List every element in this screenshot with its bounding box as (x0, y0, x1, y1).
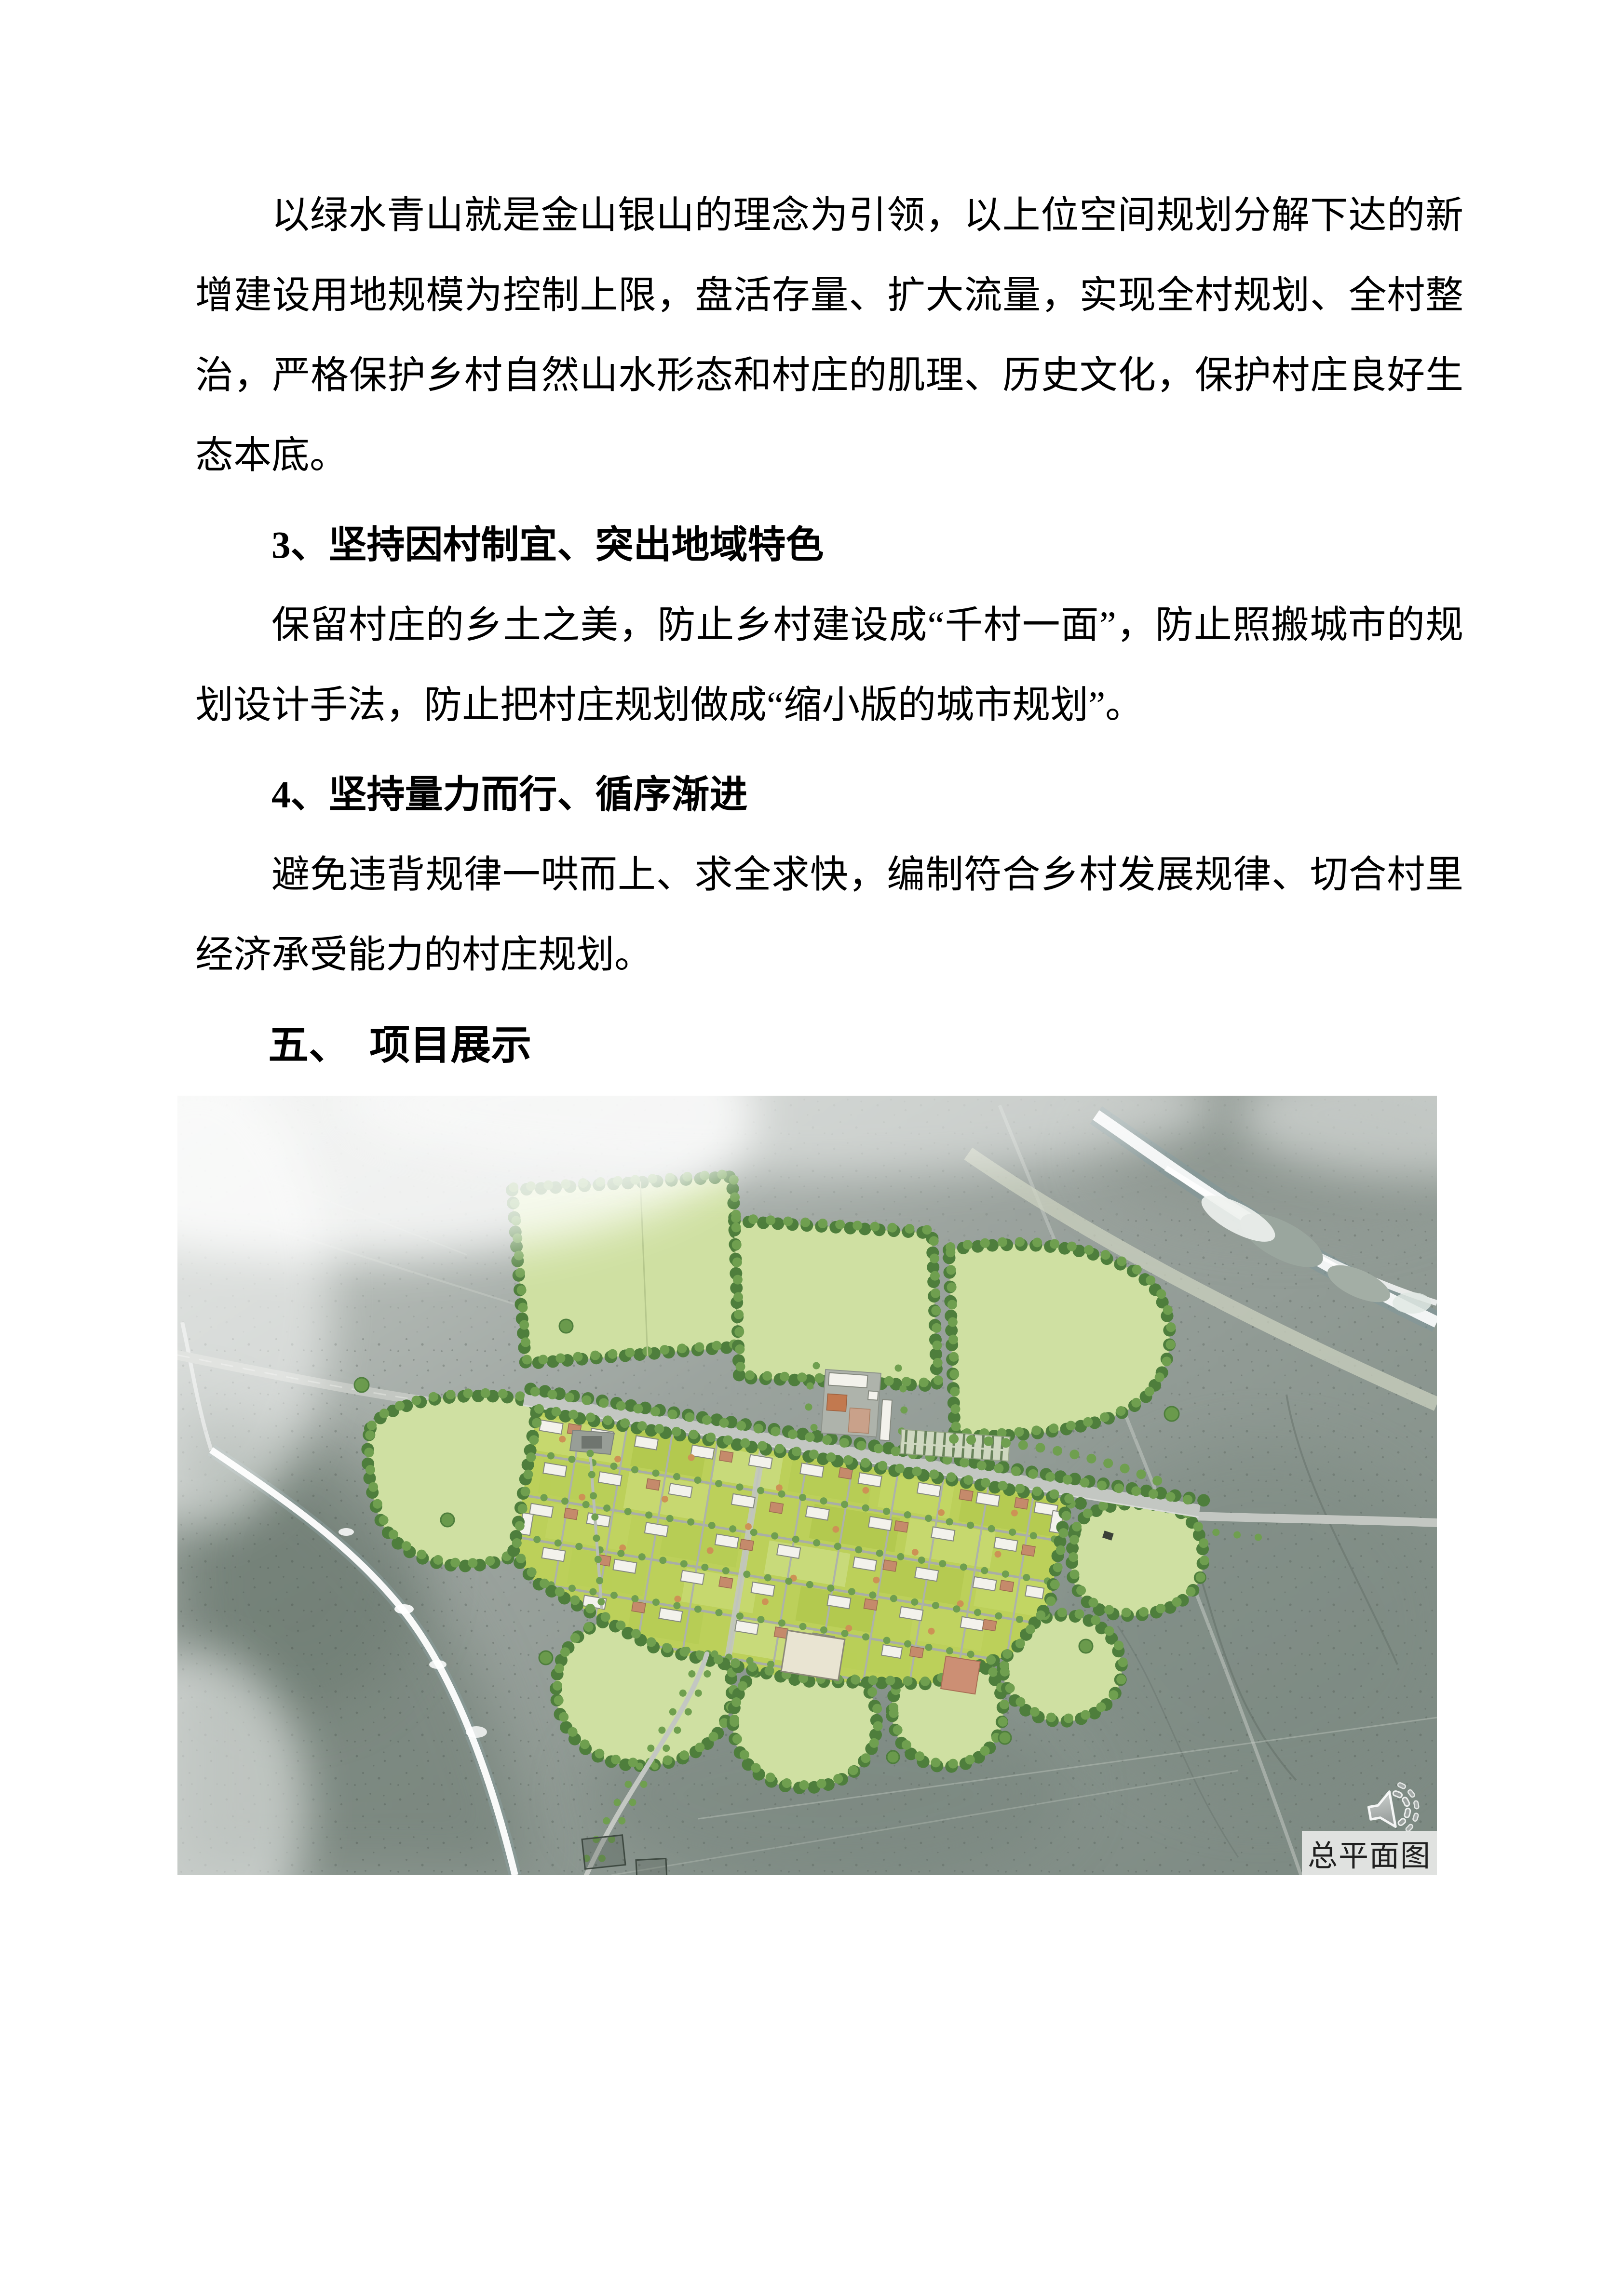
master-plan-figure: 总平面图 (177, 1096, 1437, 1875)
paragraph-principle-4: 避免违背规律一哄而上、求全求快，编制符合乡村发展规律、切合村里经济承受能力的村庄… (195, 835, 1463, 995)
heading-section-5-project-display: 五、 项目展示 (195, 1005, 1463, 1085)
paragraph-principle-3: 保留村庄的乡土之美，防止乡村建设成“千村一面”，防止照搬城市的规划设计手法，防止… (195, 586, 1463, 746)
heading-principle-3: 3、坚持因村制宜、突出地域特色 (195, 506, 1463, 586)
document-page: 以绿水青山就是金山银山的理念为引领，以上位空间规划分解下达的新增建设用地规模为控… (0, 0, 1624, 1875)
figure-caption: 总平面图 (1302, 1831, 1437, 1875)
heading-principle-4: 4、坚持量力而行、循序渐进 (195, 755, 1463, 835)
paragraph-guiding-principle: 以绿水青山就是金山银山的理念为引领，以上位空间规划分解下达的新增建设用地规模为控… (195, 176, 1463, 496)
aerial-master-plan-image (177, 1096, 1437, 1875)
